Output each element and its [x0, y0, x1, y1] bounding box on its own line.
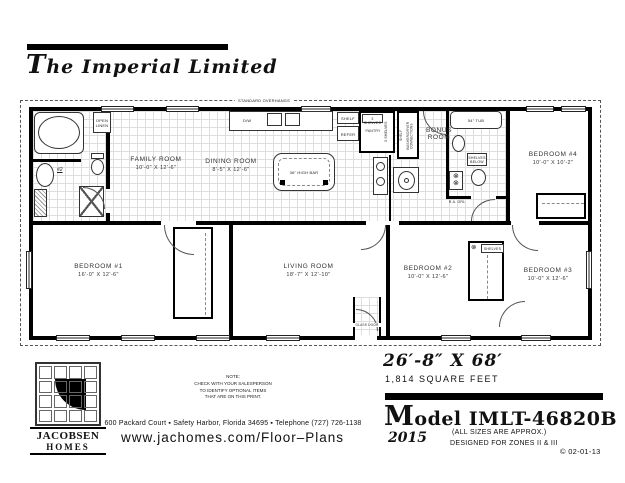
shelves-label: SHELVES: [482, 247, 503, 251]
refrigerator: REFER: [337, 126, 359, 141]
open-linen-cabinet: OPEN LINEN: [93, 112, 111, 133]
dishwasher-label: D/W: [243, 118, 251, 123]
window: [26, 251, 32, 289]
wall: [389, 155, 391, 221]
hall-bath-tub: 54" TUB: [450, 111, 502, 129]
burner: [376, 162, 385, 171]
wall: [229, 225, 233, 336]
standard-overhangs-label: STANDARD OVERHANGS: [235, 98, 293, 103]
website-url: www.jachomes.com/Floor–Plans: [100, 430, 365, 445]
logo-text-homes: HOMES: [30, 442, 106, 452]
salesperson-note: NOTE: CHECK WITH YOUR SALESPERSON TO IDE…: [173, 374, 293, 401]
window: [196, 335, 230, 341]
company-address: 600 Packard Court ▪ Safety Harbor, Flori…: [88, 420, 378, 427]
bar-stool: [323, 180, 328, 185]
room-dining: DINING ROOM 8'-5" X 12'-6": [199, 158, 263, 173]
room-dims: 10'-0" X 10'-2": [517, 160, 589, 166]
shelves-below-cabinet: SHELVES BELOW: [467, 153, 487, 166]
grille-symbol: ⊗: [450, 180, 462, 187]
hall-bath-sink: [471, 169, 486, 186]
logo-text-jacobsen: JACOBSEN: [30, 430, 106, 442]
closet-shelves: SHELVES: [481, 244, 504, 253]
room-dims: 10'-0" X 12'-6": [116, 165, 196, 171]
room-bedroom1: BEDROOM #1 16'-0" X 12'-6": [51, 263, 146, 278]
spec-divider-rule: [385, 393, 603, 400]
wall: [33, 221, 161, 225]
range: [373, 157, 388, 195]
half-bath-vanity: [393, 167, 419, 193]
wall: [196, 221, 366, 225]
kitchen-island: 36" HIGH BAR: [273, 153, 335, 191]
bedroom2-3-closet: ⊗ SHELVES: [468, 241, 504, 301]
bath2-number-label: #2: [57, 167, 63, 174]
ra-grille-label: R.A. GRL: [445, 200, 469, 204]
kitchen-sink-left: [267, 113, 282, 126]
room-bedroom4: BEDROOM #4 10'-0" X 10'-2": [517, 151, 589, 166]
room-bonus: BONUS ROOM: [421, 127, 457, 141]
washer-dryer-label: WASHER/DRYER CONNECTIONS: [407, 115, 417, 157]
sink-drain: [404, 178, 409, 183]
refer-label: REFER: [338, 132, 358, 137]
bath2-sink: [36, 163, 54, 187]
closet-rail: [542, 203, 584, 204]
wall: [353, 297, 355, 336]
bedroom4-closet: [536, 193, 586, 219]
glass-door-label: GLASS DOOR: [351, 323, 383, 327]
grille-symbol: ⊗: [471, 245, 477, 252]
three-shelves-vertical-label: 3 SHELVES: [385, 115, 389, 149]
room-name: BONUS ROOM: [421, 127, 457, 141]
kitchen-sink-right: [285, 113, 300, 126]
jacobsen-logo: [35, 362, 101, 426]
room-living: LIVING ROOM 18'-7" X 12'-10": [256, 263, 361, 278]
note-line: NOTE:: [173, 374, 293, 381]
bar-stool: [280, 180, 285, 185]
logo-grid: [39, 366, 97, 422]
shelf-label: SHELF: [338, 116, 358, 121]
floor-plan-sheet: The Imperial Limited: [0, 0, 625, 483]
zones-note: DESIGNED FOR ZONES II & III: [450, 440, 558, 447]
note-line: CHECK WITH YOUR SALESPERSON: [173, 381, 293, 388]
square-feet: 1,814 SQUARE FEET: [385, 374, 499, 384]
room-bedroom3: BEDROOM #3 10'-0" X 12'-6": [510, 267, 586, 282]
room-dims: 18'-7" X 12'-10": [256, 272, 361, 278]
burner: [376, 177, 385, 186]
window: [266, 335, 300, 341]
return-air-grille: ⊗ ⊗: [449, 171, 463, 190]
shelf-cabinet: SHELF: [337, 112, 359, 124]
pantry-label: PANTRY: [363, 129, 383, 133]
wall: [33, 159, 81, 162]
wall: [506, 111, 510, 221]
wall: [386, 225, 390, 336]
window: [441, 335, 471, 341]
shelves-cabinet: 3 SHELVES: [362, 114, 383, 123]
wall: [106, 213, 110, 221]
pantry-closet: 3 SHELVES PANTRY 3 SHELVES: [359, 111, 395, 153]
room-name: DINING ROOM: [199, 158, 263, 165]
window: [526, 106, 554, 112]
wall: [446, 196, 471, 199]
model-number: Model IMLT-46820B: [384, 401, 617, 432]
room-name: BEDROOM #2: [391, 265, 465, 272]
three-shelves-label: 3 SHELVES: [363, 117, 382, 126]
room-dims: 8'-5" X 12'-6": [199, 167, 263, 173]
room-dims: 16'-0" X 12'-6": [51, 272, 146, 278]
page-title: The Imperial Limited: [26, 50, 278, 80]
open-linen-label: OPEN LINEN: [94, 118, 110, 128]
wall: [496, 196, 506, 199]
shelves-below-label: SHELVES BELOW: [468, 156, 486, 165]
room-name: BEDROOM #4: [517, 151, 589, 158]
window: [521, 335, 551, 341]
tub-label: 54" TUB: [451, 118, 501, 123]
room-name: BEDROOM #3: [510, 267, 586, 274]
bath2-cabinet: [34, 189, 47, 217]
glass-door-opening: [355, 335, 377, 341]
note-line: TO IDENTIFY OPTIONAL ITEMS: [173, 388, 293, 395]
floor-plan: STANDARD OVERHANGS OPEN LINEN #2 D/W SHE…: [20, 100, 601, 346]
home-dimensions: 26′-8″ X 68′: [383, 351, 503, 371]
copyright-date: © 02-01-13: [560, 447, 601, 456]
room-name: FAMILY ROOM: [116, 156, 196, 163]
wall: [539, 221, 588, 225]
jacobsen-homes-wordmark: JACOBSEN HOMES: [30, 427, 106, 455]
wall: [379, 297, 381, 336]
room-family: FAMILY ROOM 10'-0" X 12'-6": [116, 156, 196, 171]
washer-dryer-closet: SHELF WASHER/DRYER CONNECTIONS: [397, 111, 419, 159]
room-dims: 10'-0" X 12'-6": [391, 274, 465, 280]
sizes-approx-note: (ALL SIZES ARE APPROX.): [452, 429, 547, 436]
room-bedroom2: BEDROOM #2 10'-0" X 12'-6": [391, 265, 465, 280]
window: [56, 335, 90, 341]
window: [166, 106, 199, 112]
garden-tub-basin: [38, 116, 80, 149]
shelf-vertical-label: SHELF: [400, 115, 404, 155]
model-year: 2015: [388, 430, 427, 446]
closet-rail: [205, 233, 206, 315]
bath2-toilet: [91, 159, 104, 175]
note-line: THAT ARE ON THIS PRINT.: [173, 394, 293, 401]
room-dims: 10'-0" X 12'-6": [510, 276, 586, 282]
window: [121, 335, 155, 341]
wall: [399, 221, 511, 225]
room-name: LIVING ROOM: [256, 263, 361, 270]
room-name: BEDROOM #1: [51, 263, 146, 270]
window: [586, 251, 592, 289]
grille-symbol: ⊗: [450, 173, 462, 180]
window: [561, 106, 586, 112]
closet-rail: [487, 255, 488, 299]
